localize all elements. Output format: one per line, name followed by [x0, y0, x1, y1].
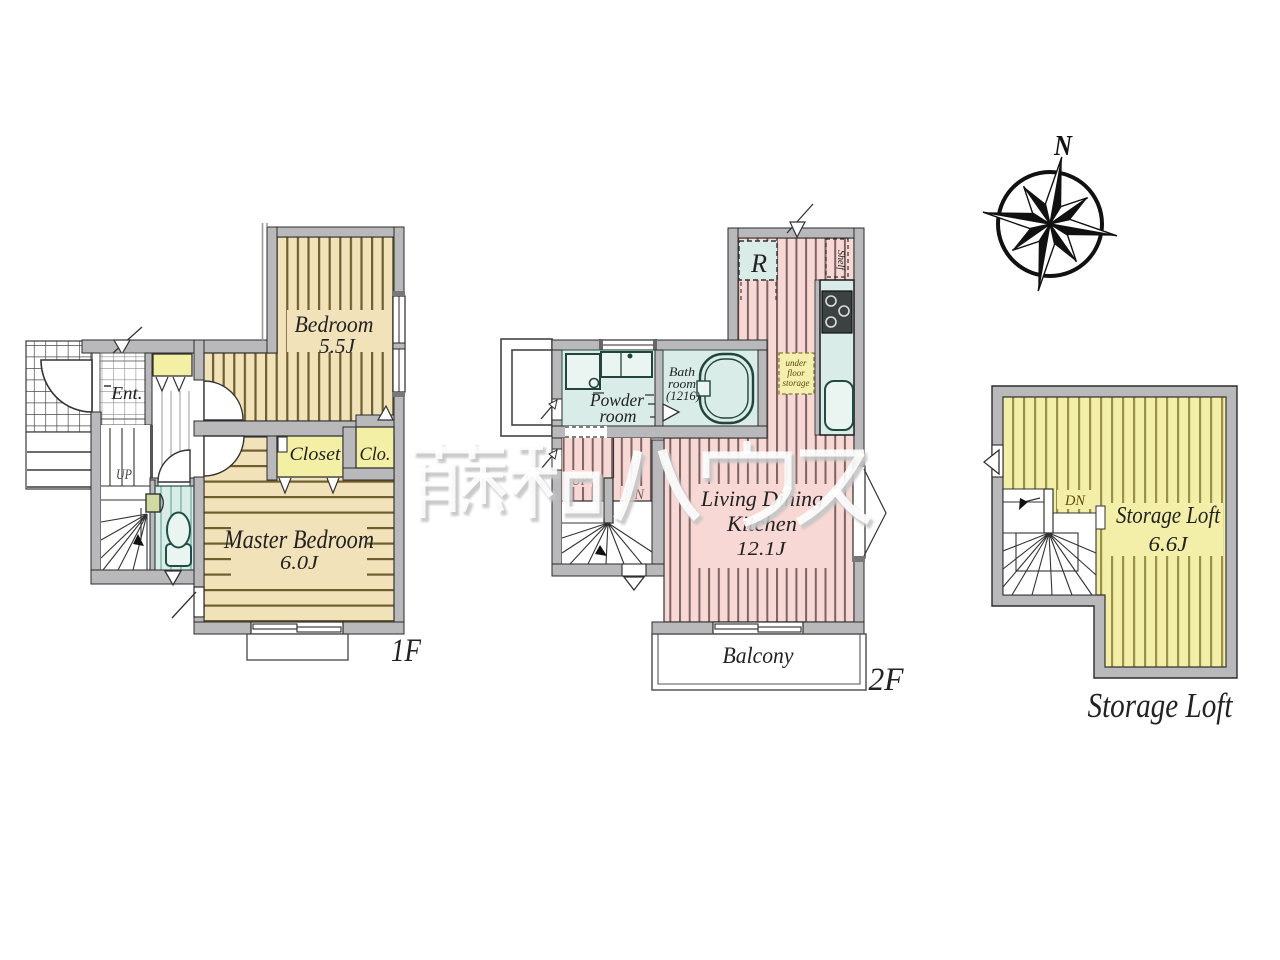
svg-text:(1216): (1216) [666, 388, 700, 403]
svg-text:1F: 1F [391, 633, 422, 669]
svg-text:12.1J: 12.1J [737, 538, 787, 560]
svg-text:under: under [786, 358, 807, 368]
svg-text:Balcony: Balcony [723, 643, 795, 668]
svg-text:Clo.: Clo. [360, 444, 391, 465]
svg-text:Living Dining: Living Dining [700, 486, 823, 511]
svg-text:DN: DN [1064, 493, 1086, 509]
svg-text:storage: storage [783, 378, 810, 388]
svg-text:Shelf: Shelf [835, 250, 846, 271]
svg-text:R: R [750, 249, 767, 278]
svg-text:Master Bedroom: Master Bedroom [223, 525, 374, 554]
svg-text:Closet: Closet [290, 444, 342, 465]
svg-text:5.5J: 5.5J [319, 334, 357, 358]
svg-text:6.0J: 6.0J [280, 552, 319, 574]
svg-text:2F: 2F [869, 662, 905, 698]
svg-text:UP: UP [116, 467, 132, 483]
svg-text:floor: floor [787, 368, 805, 378]
svg-text:room: room [600, 406, 637, 426]
svg-text:N: N [1053, 130, 1073, 162]
svg-text:Ent.: Ent. [110, 383, 142, 403]
svg-text:Storage Loft: Storage Loft [1116, 503, 1221, 529]
svg-text:Storage Loft: Storage Loft [1088, 686, 1234, 725]
svg-text:6.6J: 6.6J [1149, 532, 1190, 556]
